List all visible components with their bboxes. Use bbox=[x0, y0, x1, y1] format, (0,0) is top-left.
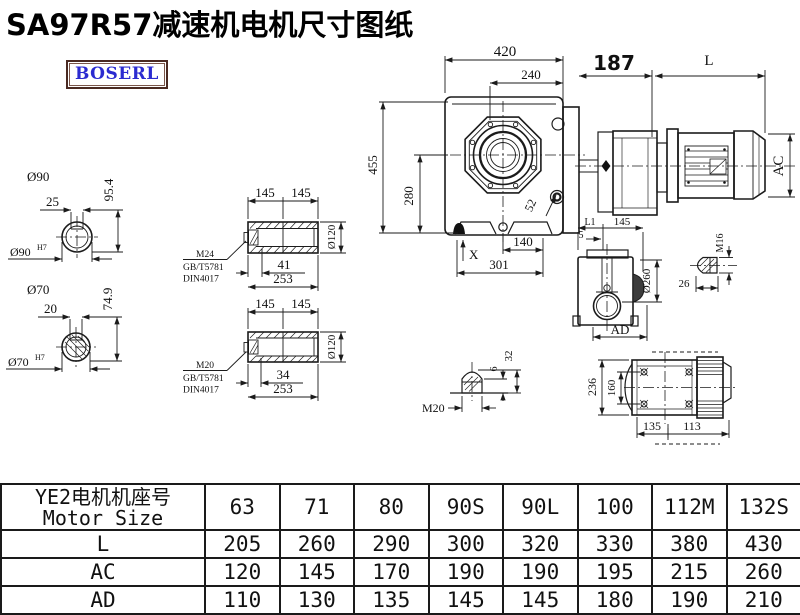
label-h2-std1: GB/T5781 bbox=[183, 374, 224, 384]
row-label-L: L bbox=[1, 530, 205, 558]
cell: 135 bbox=[354, 586, 429, 614]
dim-113: 113 bbox=[683, 419, 701, 433]
table-row-AC: AC 120 145 170 190 190 195 215 260 bbox=[1, 558, 800, 586]
label-m20-shaft: M20 bbox=[196, 361, 214, 371]
dim-h1-253: 253 bbox=[273, 271, 293, 286]
hollow-shaft-detail-2: 145 145 Ø120 34 253 M20 GB/T5781 DIN4017 bbox=[183, 296, 346, 401]
dim-260: Ø260 bbox=[641, 268, 653, 293]
header-line2: Motor Size bbox=[2, 508, 204, 529]
label-x: X bbox=[469, 247, 479, 262]
dim-h2-34: 34 bbox=[277, 367, 291, 382]
page-title: SA97R57减速机电机尺寸图纸 bbox=[6, 2, 413, 44]
dim-L: L bbox=[704, 53, 713, 69]
cell: 180 bbox=[578, 586, 653, 614]
row-label-AD: AD bbox=[1, 586, 205, 614]
table-row-L: L 205 260 290 300 320 330 380 430 bbox=[1, 530, 800, 558]
cell: 330 bbox=[578, 530, 653, 558]
dim-h1-41: 41 bbox=[278, 257, 291, 272]
dim-key25: 25 bbox=[46, 194, 59, 209]
dim-h1-145a: 145 bbox=[255, 185, 275, 200]
motor-bottom-view: 236 160 135 113 bbox=[585, 352, 737, 444]
dim-52: 52 bbox=[521, 197, 539, 214]
brand-logo: BOSERL bbox=[66, 60, 168, 89]
dim-h1-od120: Ø120 bbox=[326, 224, 338, 249]
dim-bore70-tol: H7 bbox=[35, 353, 45, 362]
table-row-AD: AD 110 130 135 145 145 180 190 210 bbox=[1, 586, 800, 614]
dim-key20: 20 bbox=[44, 301, 57, 316]
col-63: 63 bbox=[205, 484, 280, 530]
cell: 300 bbox=[429, 530, 504, 558]
dim-32: 32 bbox=[503, 351, 515, 362]
cell: 290 bbox=[354, 530, 429, 558]
col-90S: 90S bbox=[429, 484, 504, 530]
dim-bore90-tol: H7 bbox=[37, 243, 47, 252]
dim-187: 187 bbox=[593, 51, 635, 75]
dim-280: 280 bbox=[401, 186, 416, 206]
cell: 260 bbox=[280, 530, 355, 558]
dim-side-5: 5 bbox=[579, 230, 584, 241]
header-motor-size: YE2电机机座号 Motor Size bbox=[1, 484, 205, 530]
cell: 190 bbox=[503, 558, 578, 586]
cell: 190 bbox=[429, 558, 504, 586]
cell: 130 bbox=[280, 586, 355, 614]
dim-74-9: 74.9 bbox=[100, 288, 115, 311]
dim-135: 135 bbox=[643, 419, 661, 433]
dim-AC: AC bbox=[771, 156, 787, 177]
dim-h2-145b: 145 bbox=[291, 296, 311, 311]
label-h1-std1: GB/T5781 bbox=[183, 263, 224, 273]
drawing-sheet: Ø90 25 95.4 Ø90 H7 Ø70 20 bbox=[0, 0, 800, 613]
gearbox-side-view: L1 145 5 Ø260 AD bbox=[573, 216, 662, 341]
cell: 145 bbox=[429, 586, 504, 614]
col-90L: 90L bbox=[503, 484, 578, 530]
bolt-detail-m16: M16 26 bbox=[679, 234, 738, 292]
cell: 110 bbox=[205, 586, 280, 614]
dim-bore90: Ø90 bbox=[10, 245, 31, 259]
col-80: 80 bbox=[354, 484, 429, 530]
dim-h1-145b: 145 bbox=[291, 185, 311, 200]
dim-h2-145a: 145 bbox=[255, 296, 275, 311]
label-h1-std2: DIN4017 bbox=[183, 275, 219, 285]
dim-236: 236 bbox=[585, 378, 599, 396]
col-132S: 132S bbox=[727, 484, 800, 530]
shaft-section-90-view: Ø90 25 95.4 Ø90 H7 bbox=[8, 169, 123, 262]
table-header-row: YE2电机机座号 Motor Size 63 71 80 90S 90L 100… bbox=[1, 484, 800, 530]
dim-AD: AD bbox=[611, 322, 630, 337]
dim-420: 420 bbox=[494, 44, 517, 60]
cell: 215 bbox=[652, 558, 727, 586]
bolt-detail-m20: 32 6 M20 bbox=[422, 351, 521, 416]
dim-26: 26 bbox=[679, 278, 691, 290]
dim-240: 240 bbox=[521, 67, 541, 82]
cell: 430 bbox=[727, 530, 800, 558]
cell: 320 bbox=[503, 530, 578, 558]
main-assembly-view: 420 240 455 280 52 X 140 301 187 L bbox=[365, 44, 797, 277]
dim-bore70: Ø70 bbox=[8, 355, 29, 369]
col-100: 100 bbox=[578, 484, 653, 530]
cell: 210 bbox=[727, 586, 800, 614]
dim-h2-od120: Ø120 bbox=[326, 334, 338, 359]
row-label-AC: AC bbox=[1, 558, 205, 586]
cell: 145 bbox=[280, 558, 355, 586]
cell: 195 bbox=[578, 558, 653, 586]
dim-95-4: 95.4 bbox=[101, 178, 116, 201]
dim-6: 6 bbox=[489, 367, 500, 372]
dim-160: 160 bbox=[606, 379, 618, 396]
brand-logo-text: BOSERL bbox=[75, 64, 159, 84]
motor-size-table: YE2电机机座号 Motor Size 63 71 80 90S 90L 100… bbox=[0, 483, 800, 615]
dim-301: 301 bbox=[489, 257, 509, 272]
dim-L1: L1 bbox=[584, 217, 595, 228]
cell: 170 bbox=[354, 558, 429, 586]
cell: 120 bbox=[205, 558, 280, 586]
dim-od90: Ø90 bbox=[27, 169, 49, 184]
cell: 190 bbox=[652, 586, 727, 614]
cell: 205 bbox=[205, 530, 280, 558]
shaft-section-70-view: Ø70 20 74.9 Ø70 H7 bbox=[6, 282, 122, 372]
dim-side-145: 145 bbox=[614, 216, 631, 228]
brand-logo-frame: BOSERL bbox=[69, 63, 165, 86]
dim-140: 140 bbox=[513, 234, 533, 249]
dim-M20: M20 bbox=[422, 401, 445, 415]
col-112M: 112M bbox=[652, 484, 727, 530]
header-line1: YE2电机机座号 bbox=[2, 486, 204, 508]
col-71: 71 bbox=[280, 484, 355, 530]
cell: 145 bbox=[503, 586, 578, 614]
dim-h2-253: 253 bbox=[273, 381, 293, 396]
cell: 380 bbox=[652, 530, 727, 558]
dim-455: 455 bbox=[365, 155, 380, 175]
dim-od70: Ø70 bbox=[27, 282, 49, 297]
hollow-shaft-detail-1: 145 145 Ø120 41 253 M24 GB/T5781 DIN4017 bbox=[183, 185, 346, 291]
label-m24: M24 bbox=[196, 250, 214, 260]
label-h2-std2: DIN4017 bbox=[183, 386, 219, 396]
dim-M16: M16 bbox=[715, 234, 726, 253]
cell: 260 bbox=[727, 558, 800, 586]
